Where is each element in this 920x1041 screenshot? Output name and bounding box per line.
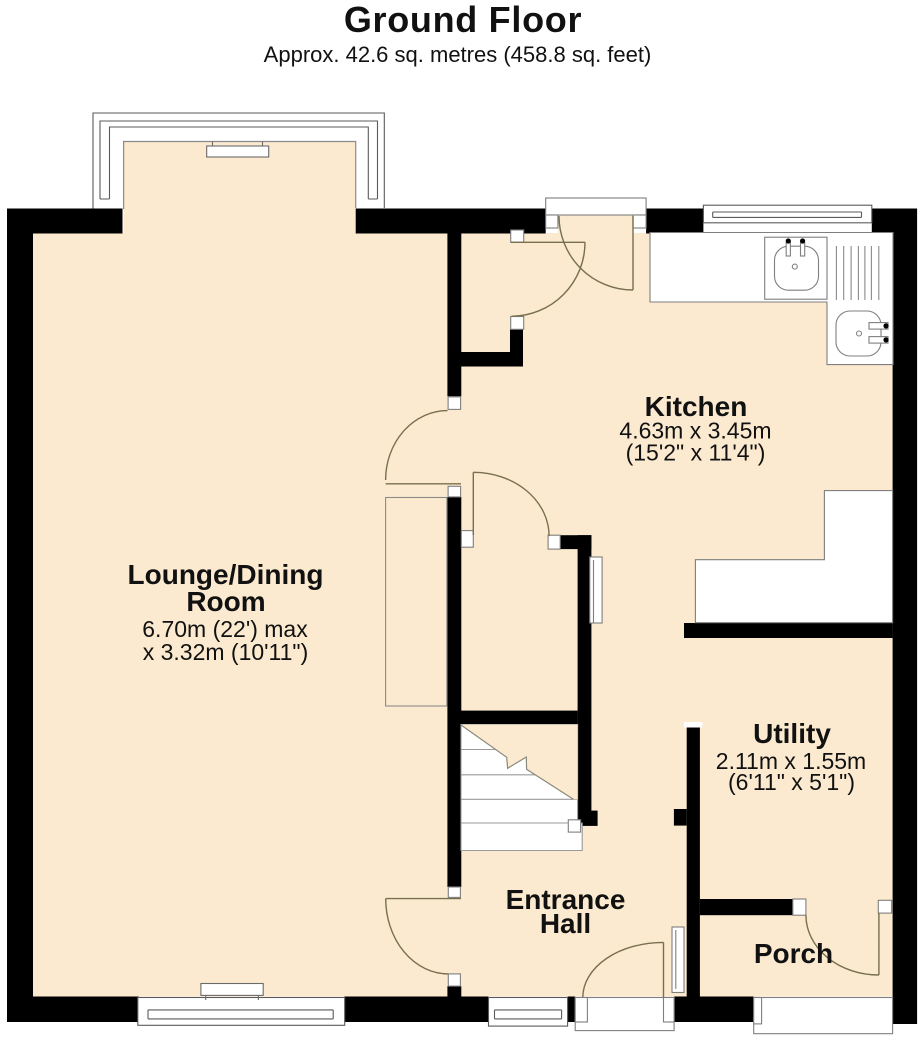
svg-text:Utility: Utility <box>753 718 831 749</box>
svg-text:(15'2" x 11'4"): (15'2" x 11'4") <box>626 440 766 466</box>
svg-text:Ground Floor: Ground Floor <box>344 0 582 40</box>
svg-text:Approx. 42.6 sq. metres (458.8: Approx. 42.6 sq. metres (458.8 sq. feet) <box>264 42 652 67</box>
svg-text:Porch: Porch <box>754 938 833 969</box>
svg-text:(6'11" x 5'1"): (6'11" x 5'1") <box>728 769 855 795</box>
svg-text:Room: Room <box>186 586 265 617</box>
svg-text:x 3.32m (10'11"): x 3.32m (10'11") <box>143 639 309 665</box>
svg-text:Hall: Hall <box>540 908 591 939</box>
